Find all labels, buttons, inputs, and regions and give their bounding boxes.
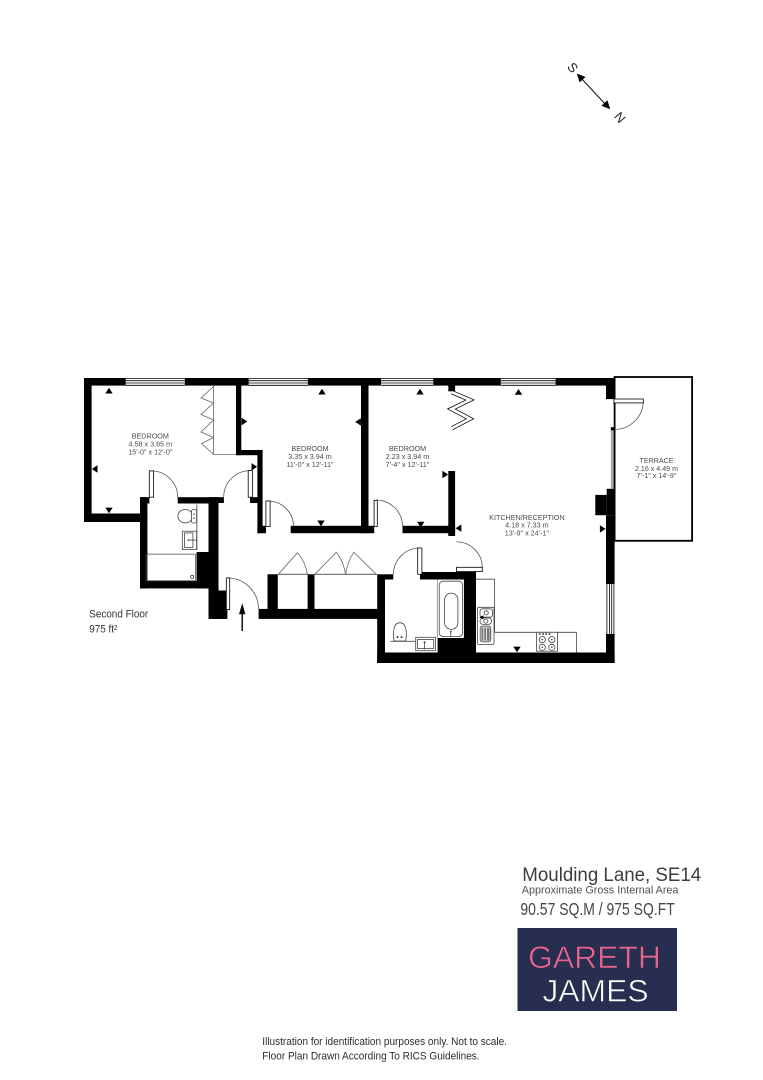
- svg-text:JAMES: JAMES: [542, 973, 648, 1009]
- svg-text:Moulding Lane, SE14: Moulding Lane, SE14: [522, 865, 701, 886]
- svg-text:TERRACE: TERRACE: [640, 457, 674, 465]
- svg-text:11'-0" x 12'-11": 11'-0" x 12'-11": [286, 460, 334, 469]
- svg-text:N: N: [611, 109, 629, 126]
- svg-text:Second Floor: Second Floor: [89, 609, 149, 620]
- svg-text:7'-4" x 12'-11": 7'-4" x 12'-11": [386, 460, 430, 469]
- svg-text:975 ft²: 975 ft²: [89, 624, 118, 635]
- svg-text:13'-9" x 24'-1": 13'-9" x 24'-1": [505, 528, 550, 537]
- svg-text:15'-0" x 12'-0": 15'-0" x 12'-0": [128, 448, 173, 457]
- svg-text:Illustration for identificatio: Illustration for identification purposes…: [262, 1036, 507, 1049]
- svg-text:Floor Plan Drawn According To: Floor Plan Drawn According To RICS Guide…: [262, 1050, 479, 1063]
- svg-text:S: S: [564, 59, 581, 76]
- svg-text:GARETH: GARETH: [528, 939, 661, 975]
- svg-text:90.57 SQ.M / 975 SQ.FT: 90.57 SQ.M / 975 SQ.FT: [520, 900, 675, 920]
- svg-text:7'-1" x 14'-9": 7'-1" x 14'-9": [637, 472, 677, 480]
- svg-text:Approximate Gross Internal Are: Approximate Gross Internal Area: [522, 884, 679, 896]
